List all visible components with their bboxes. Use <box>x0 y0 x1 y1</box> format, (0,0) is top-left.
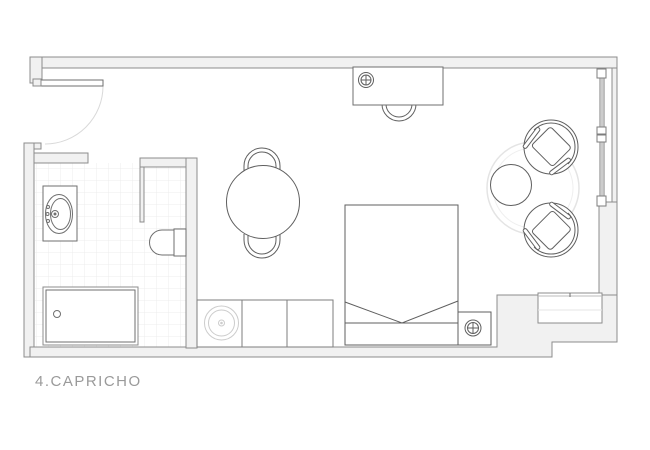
right-wall-lower <box>599 202 617 295</box>
left-wall <box>24 143 34 357</box>
tap-hole-icon <box>47 206 50 209</box>
bed <box>345 205 458 345</box>
tap-hole-icon <box>47 220 50 223</box>
floor-plan-canvas: 4.CAPRICHO <box>0 0 650 450</box>
console-cabinet <box>538 293 602 323</box>
toilet-tank <box>174 229 186 256</box>
window-frame-bottom <box>597 196 606 206</box>
shower-drain-icon <box>54 311 61 318</box>
lounge-area <box>487 109 589 268</box>
socket-symbol-bed <box>465 320 481 336</box>
desk-area <box>353 67 443 121</box>
window-frame-middle-upper <box>597 127 606 134</box>
socket-symbol-desk <box>359 73 374 88</box>
window <box>597 69 606 206</box>
window-frame-middle-lower <box>597 135 606 142</box>
entrance-door-hinge-block <box>33 79 41 86</box>
entrance-door <box>33 79 103 144</box>
window-frame-top <box>597 69 606 78</box>
armchair-bottom <box>513 192 589 268</box>
dining-area <box>227 148 300 258</box>
door-jamb-block <box>34 143 41 149</box>
entrance-door-leaf <box>40 80 103 86</box>
faucet-dot-icon <box>54 213 56 215</box>
entrance-door-swing-arc <box>45 86 103 144</box>
dining-table <box>227 166 300 239</box>
kitchenette <box>197 300 333 347</box>
bathroom-wall-left-segment <box>34 153 88 163</box>
plan-title: 4.CAPRICHO <box>35 373 142 390</box>
tap-hole-icon <box>46 213 49 216</box>
right-wall-window-strip <box>612 68 617 202</box>
bathroom-wall-right-segment <box>140 158 192 167</box>
side-table <box>491 165 532 206</box>
bathroom-partition-wall <box>140 167 144 222</box>
bathroom-right-wall <box>186 158 197 348</box>
top-wall <box>42 57 617 68</box>
bed-area <box>345 205 491 345</box>
console-cabinet-body <box>538 293 602 323</box>
toilet-bowl <box>150 230 175 255</box>
